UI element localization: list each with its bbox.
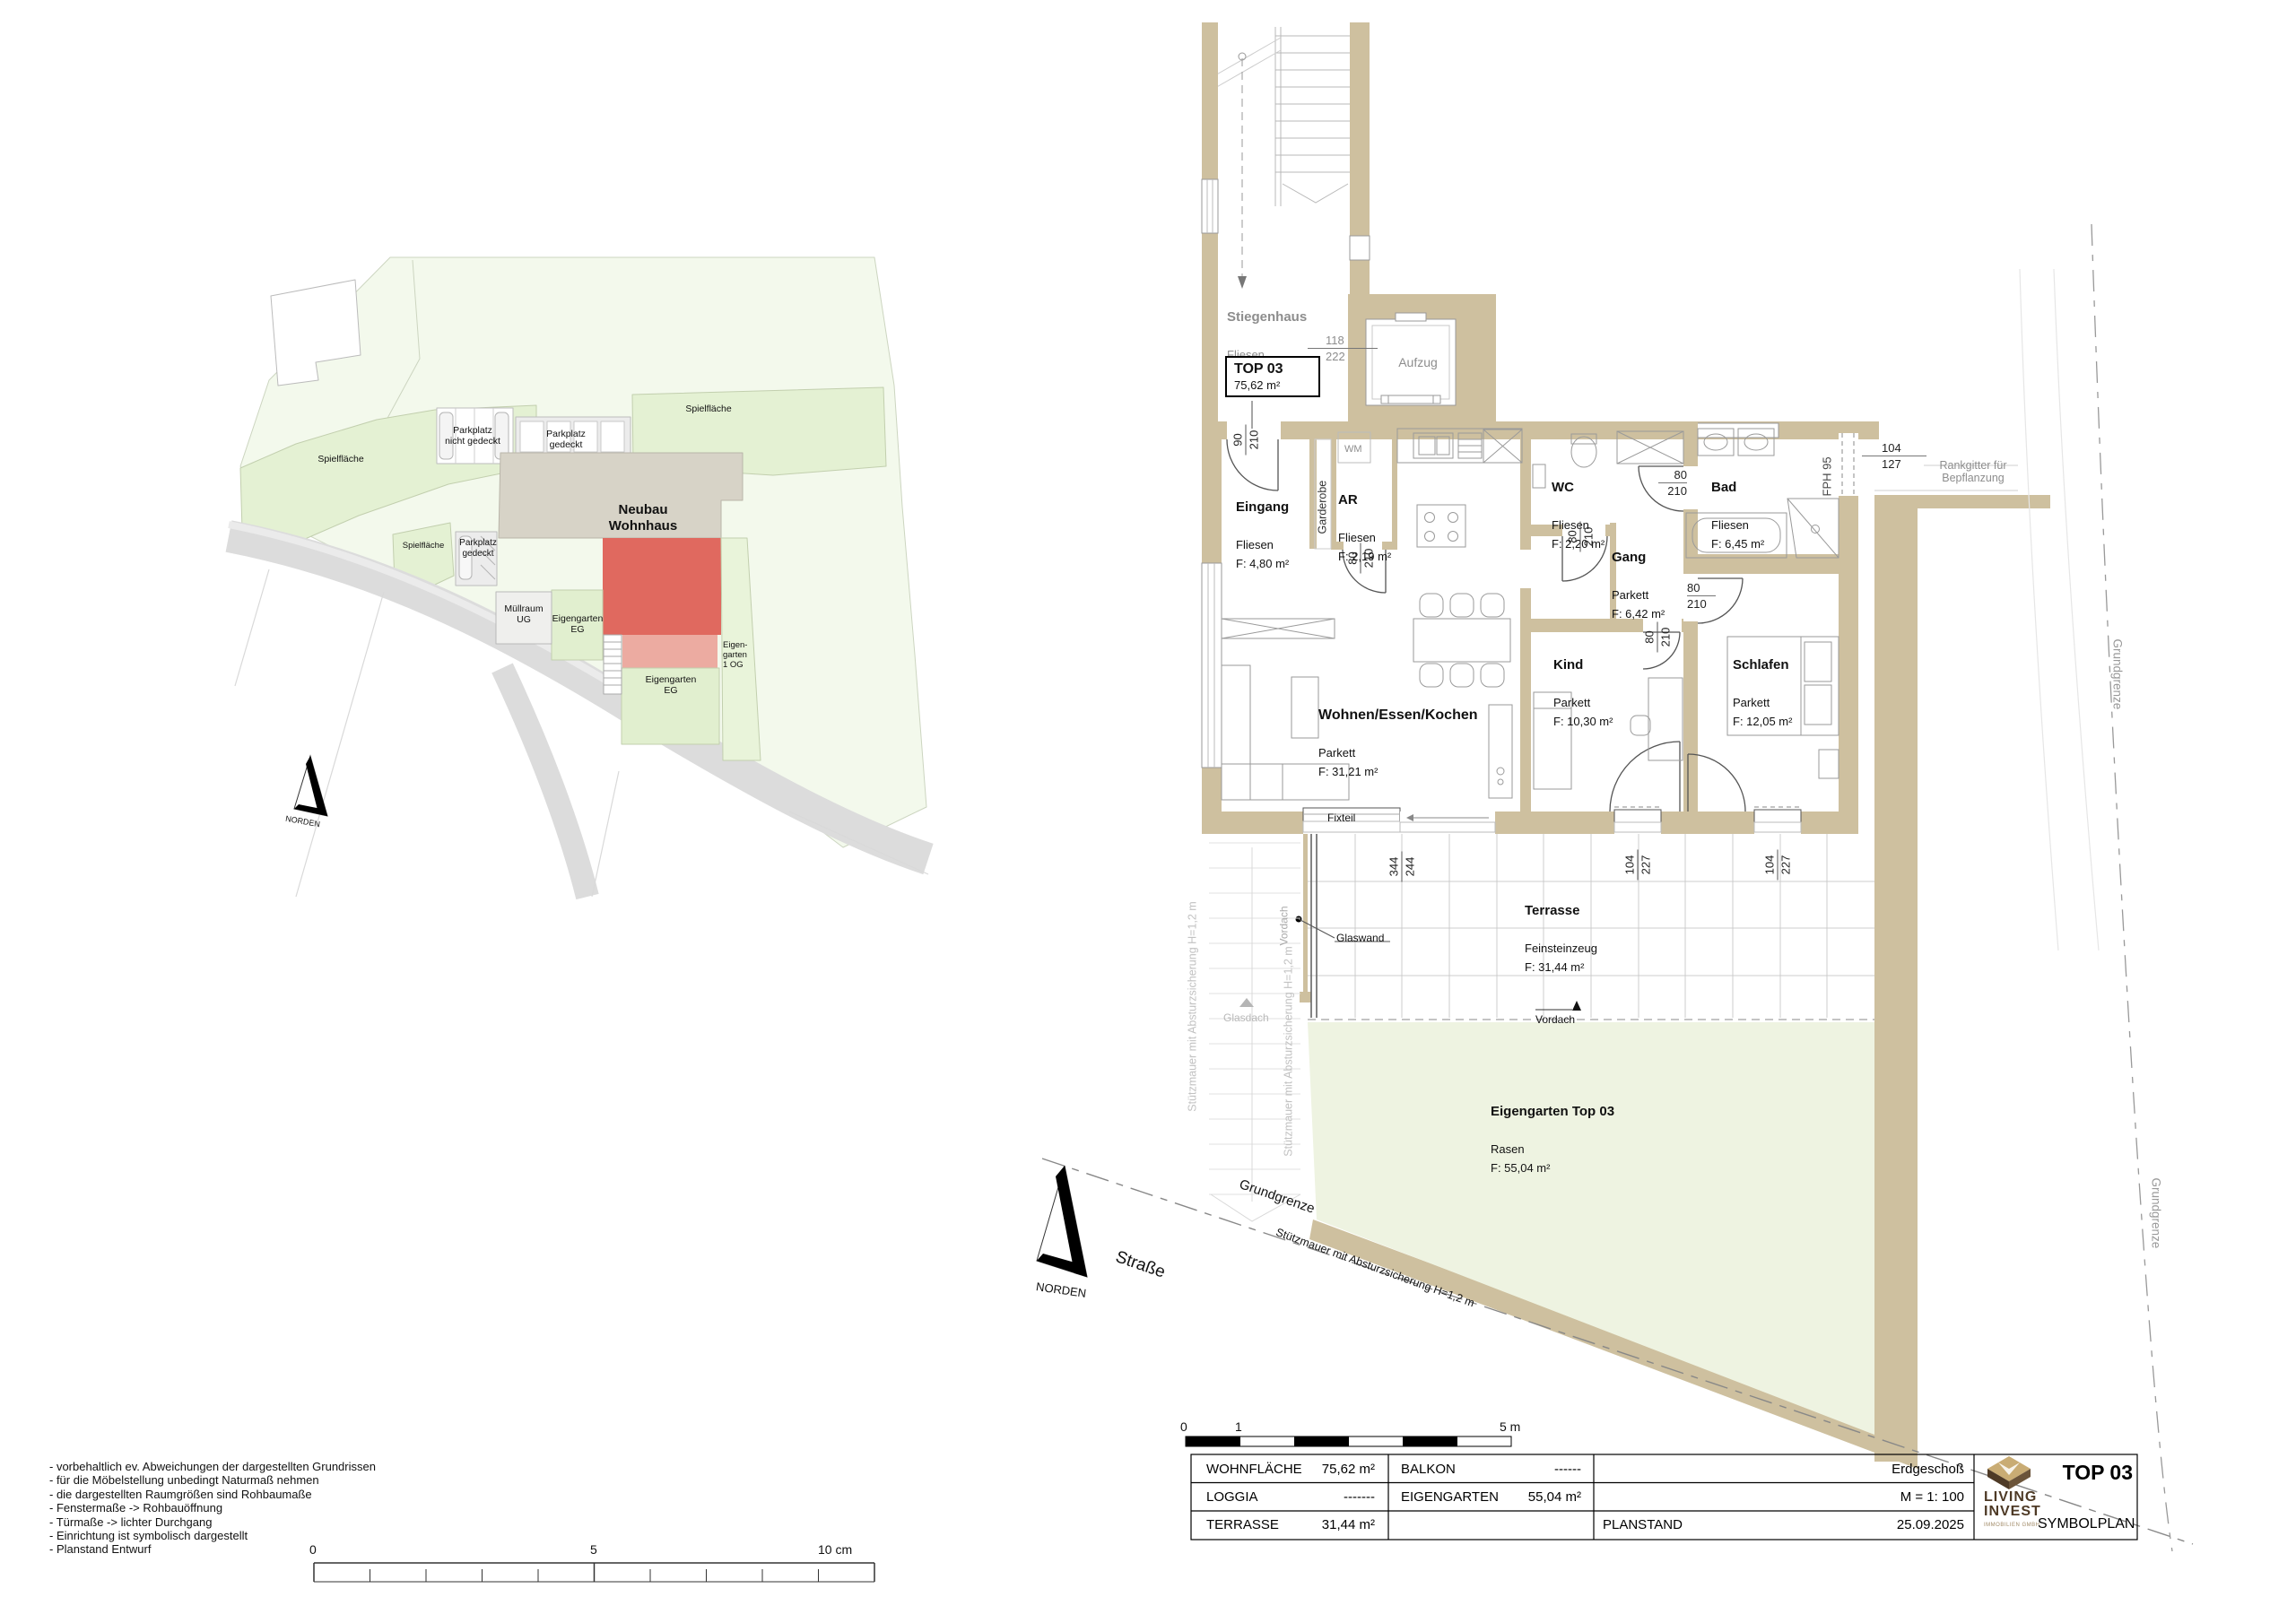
plan-page: Spielfläche Spielfläche Spielfläche Park…	[0, 0, 2296, 1623]
tb-planstand-label: PLANSTAND	[1603, 1517, 1683, 1532]
top03-area: 75,62 m²	[1234, 378, 1311, 393]
room-area: F: 31,44 m²	[1525, 958, 1597, 976]
room-area: F: 31,21 m²	[1318, 762, 1478, 781]
scale-bar-m-graphic	[1186, 1436, 1511, 1446]
tb-balkon-label: BALKON	[1401, 1462, 1456, 1477]
note-line: - Türmaße -> lichter Durchgang	[49, 1515, 376, 1529]
room-floor: Parkett	[1733, 696, 1770, 709]
room-name: Eingang	[1236, 498, 1289, 516]
tb-loggia-label: LOGGIA	[1206, 1489, 1258, 1505]
scale-m-5: 5 m	[1500, 1419, 1520, 1434]
room-label-terrasse: Terrasse Feinsteinzeug F: 31,44 m²	[1525, 882, 1597, 995]
room-label-schlafen: Schlafen Parkett F: 12,05 m²	[1733, 637, 1792, 750]
room-name: Kind	[1553, 655, 1613, 674]
dim-h: 227	[1779, 855, 1793, 875]
dim-h: 222	[1308, 350, 1378, 363]
north-arrow-site-icon	[294, 756, 327, 816]
dim-h: 210	[1362, 549, 1376, 568]
label-rankgitter: Rankgitter für Bepflanzung	[1928, 459, 2018, 484]
room-area: F: 6,45 m²	[1711, 534, 1764, 553]
label-stuetzmauer-left-1: Stützmauer mit Absturzsicherung H=1,2 m	[1184, 855, 1203, 1159]
dim-w: 90	[1231, 433, 1245, 446]
logo-living: LIVING	[1984, 1490, 2037, 1504]
room-name: Gang	[1612, 548, 1665, 567]
dim-wc-door: 80 210	[1566, 522, 1596, 552]
dim-h: 210	[1659, 628, 1673, 647]
plan-notes: - vorbehaltlich ev. Abweichungen der dar…	[49, 1460, 376, 1557]
scale-cm-0: 0	[309, 1542, 317, 1557]
tb-plan-type: SYMBOLPLAN	[2038, 1516, 2135, 1532]
room-floor: Parkett	[1553, 696, 1590, 709]
label-grundgrenze-right-1: Grundgrenze	[2109, 639, 2127, 722]
room-name: Schlafen	[1733, 655, 1792, 674]
scale-cm-5: 5	[590, 1542, 597, 1557]
note-line: - vorbehaltlich ev. Abweichungen der dar…	[49, 1460, 376, 1473]
plan-graphics	[0, 0, 2296, 1623]
dim-schlafen-door: 80 210	[1687, 581, 1716, 611]
dim-w: 80	[1566, 530, 1579, 542]
dim-w: 104	[1623, 855, 1637, 875]
tb-balkon-value: ------	[1475, 1462, 1581, 1477]
site-label-parkplatz-nicht-gedeckt: Parkplatz nicht gedeckt	[438, 425, 508, 447]
tb-planstand-value: 25.09.2025	[1837, 1517, 1964, 1532]
site-label-spielflaeche-2: Spielfläche	[673, 404, 744, 414]
note-line: - Einrichtung ist symbolisch dargestellt	[49, 1529, 376, 1542]
tb-floor: Erdgeschoß	[1837, 1462, 1964, 1477]
room-name: Stiegenhaus	[1227, 308, 1307, 326]
note-line: - Planstand Entwurf	[49, 1542, 376, 1556]
dim-h: 127	[1862, 457, 1926, 471]
room-area: F: 12,05 m²	[1733, 712, 1792, 731]
room-area: F: 4,80 m²	[1236, 554, 1289, 573]
top03-title: TOP 03	[1234, 360, 1311, 378]
scale-bar-cm-graphic	[314, 1563, 874, 1582]
room-name: Bad	[1711, 478, 1764, 497]
dim-schlafen-window: 104 227	[1763, 850, 1793, 881]
note-line: - Fenstermaße -> Rohbauöffnung	[49, 1501, 376, 1515]
dim-ar-door: 80 210	[1346, 543, 1376, 574]
room-label-wc: WC Fliesen F: 2,20 m²	[1552, 459, 1605, 572]
dim-h: 210	[1582, 527, 1596, 547]
site-label-eigengarten-eg-2: Eigengarten EG	[626, 674, 716, 696]
room-name: Terrasse	[1525, 901, 1597, 920]
site-label-muellraum: Müllraum UG	[497, 603, 551, 625]
room-label-bad: Bad Fliesen F: 6,45 m²	[1711, 459, 1764, 572]
room-label-eigengarten: Eigengarten Top 03 Rasen F: 55,04 m²	[1491, 1083, 1614, 1196]
tb-unit: TOP 03	[2056, 1465, 2133, 1480]
living-invest-logo-icon	[1987, 1456, 2031, 1489]
dim-w: 104	[1862, 441, 1926, 455]
site-plan-graphics	[229, 257, 928, 897]
room-floor: Feinsteinzeug	[1525, 942, 1597, 955]
logo-subline: IMMOBILIEN GMBH	[1984, 1523, 2040, 1528]
room-area: F: 6,42 m²	[1612, 604, 1665, 623]
dim-bad-window: 104 127	[1862, 441, 1926, 471]
room-name: Eigengarten Top 03	[1491, 1102, 1614, 1121]
tb-wohnflaeche-value: 75,62 m²	[1269, 1462, 1375, 1477]
site-label-spielflaeche-1: Spielfläche	[305, 454, 377, 464]
dim-kind-window: 104 227	[1623, 850, 1653, 881]
dim-w: 104	[1763, 855, 1777, 875]
dim-h: 227	[1639, 855, 1653, 875]
dim-h: 210	[1248, 430, 1261, 450]
site-label-eigengarten-eg-1: Eigengarten EG	[545, 613, 610, 635]
dim-eingang-door: 90 210	[1231, 425, 1261, 456]
dim-w: 80	[1658, 468, 1687, 482]
room-area: F: 55,04 m²	[1491, 1159, 1614, 1177]
scale-m-1: 1	[1235, 1419, 1242, 1434]
scale-cm-10: 10 cm	[818, 1542, 852, 1557]
tb-scale: M = 1: 100	[1837, 1489, 1964, 1505]
dim-w: 118	[1308, 334, 1378, 347]
dim-h: 210	[1687, 597, 1716, 611]
dim-h: 244	[1404, 857, 1417, 877]
room-label-aufzug: Aufzug	[1387, 353, 1449, 372]
tb-loggia-value: -------	[1269, 1489, 1375, 1505]
logo-invest: INVEST	[1984, 1505, 2041, 1518]
room-name: AR	[1338, 490, 1391, 509]
site-building-label: Neubau Wohnhaus	[590, 502, 696, 534]
tb-terrasse-value: 31,44 m²	[1269, 1517, 1375, 1532]
room-name: WC	[1552, 478, 1605, 497]
site-label-parkplatz-gedeckt-2: Parkplatz gedeckt	[448, 538, 508, 559]
label-garderobe: Garderobe	[1314, 454, 1333, 534]
room-floor: Parkett	[1318, 746, 1355, 759]
site-label-parkplatz-gedeckt-1: Parkplatz gedeckt	[536, 429, 596, 450]
note-line: - die dargestellten Raumgrößen sind Rohb…	[49, 1488, 376, 1501]
label-fixteil: Fixteil	[1327, 809, 1355, 828]
room-label-kind: Kind Parkett F: 10,30 m²	[1553, 637, 1613, 750]
dim-terrace-door: 344 244	[1387, 852, 1417, 882]
label-glasdach: Glasdach	[1223, 1009, 1269, 1028]
tb-terrasse-label: TERRASSE	[1206, 1517, 1279, 1532]
room-label-eingang: Eingang Fliesen F: 4,80 m²	[1236, 479, 1289, 592]
label-wm: WM	[1344, 440, 1362, 459]
room-floor: Rasen	[1491, 1142, 1525, 1156]
room-area: F: 10,30 m²	[1553, 712, 1613, 731]
label-grundgrenze-right-2: Grundgrenze	[2147, 1178, 2166, 1261]
room-floor: Fliesen	[1236, 538, 1274, 551]
dim-kind-door: 80 210	[1643, 622, 1673, 653]
label-vordach: Vordach	[1535, 1011, 1575, 1029]
north-arrow-plan-icon	[1037, 1166, 1087, 1277]
room-floor: Parkett	[1612, 588, 1648, 602]
tb-eigengarten-value: 55,04 m²	[1475, 1489, 1581, 1505]
room-floor: Fliesen	[1711, 518, 1749, 532]
room-label-wohnen: Wohnen/Essen/Kochen Parkett F: 31,21 m²	[1318, 687, 1478, 800]
label-stuetzmauer-left-2: Stützmauer mit Absturzsicherung H=1,2 m	[1280, 904, 1299, 1200]
room-name: Wohnen/Essen/Kochen	[1318, 706, 1478, 725]
scale-m-0: 0	[1180, 1419, 1187, 1434]
dim-w: 80	[1346, 551, 1360, 564]
dim-elevator: 118 222	[1308, 334, 1378, 363]
dim-w: 80	[1643, 630, 1657, 643]
dim-w: 344	[1387, 857, 1401, 877]
site-label-eigengarten-og: Eigen- garten 1 OG	[723, 640, 768, 670]
label-fph95: FPH 95	[1818, 434, 1837, 497]
label-glaswand: Glaswand	[1336, 929, 1384, 948]
top03-box: TOP 03 75,62 m²	[1225, 356, 1320, 397]
note-line: - für die Möbelstellung unbedingt Naturm…	[49, 1473, 376, 1487]
staircase-graphics	[1209, 27, 1350, 289]
dim-h: 210	[1658, 484, 1687, 498]
dim-bad-door: 80 210	[1658, 468, 1687, 498]
dim-w: 80	[1687, 581, 1716, 595]
